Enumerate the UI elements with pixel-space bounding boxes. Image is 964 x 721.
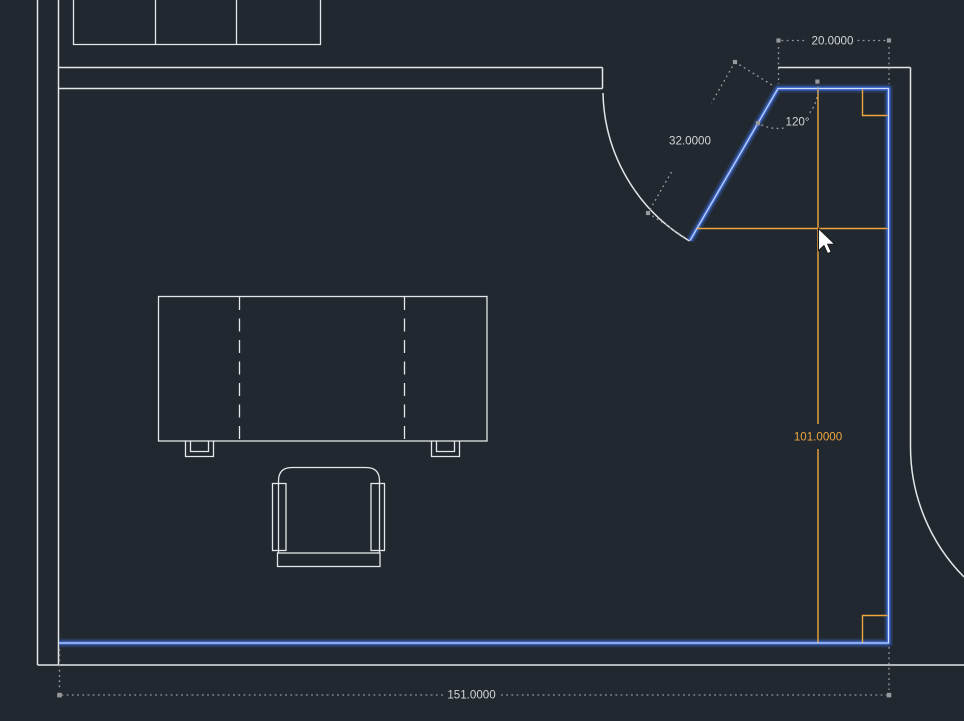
dim-marker [815, 80, 819, 84]
dim-bottom-width-label: 151.0000 [447, 689, 495, 702]
dim-door-angle-label: 120° [786, 116, 810, 129]
cad-drawing-viewport[interactable]: 101.0000 20.0000 32.000 [0, 0, 964, 721]
dim-marker [646, 211, 650, 215]
dim-top-width-label: 20.0000 [812, 35, 854, 48]
dim-marker [57, 693, 62, 698]
dim-marker [776, 38, 780, 42]
dim-marker [887, 38, 891, 42]
cad-canvas[interactable]: 101.0000 20.0000 32.000 [0, 0, 964, 721]
dim-marker [756, 121, 760, 125]
dim-marker [733, 60, 737, 64]
canvas-background [0, 0, 964, 721]
dim-door-length-label: 32.0000 [669, 135, 711, 148]
dim-marker [887, 693, 892, 698]
dynamic-dim-right-height-label: 101.0000 [794, 431, 842, 444]
